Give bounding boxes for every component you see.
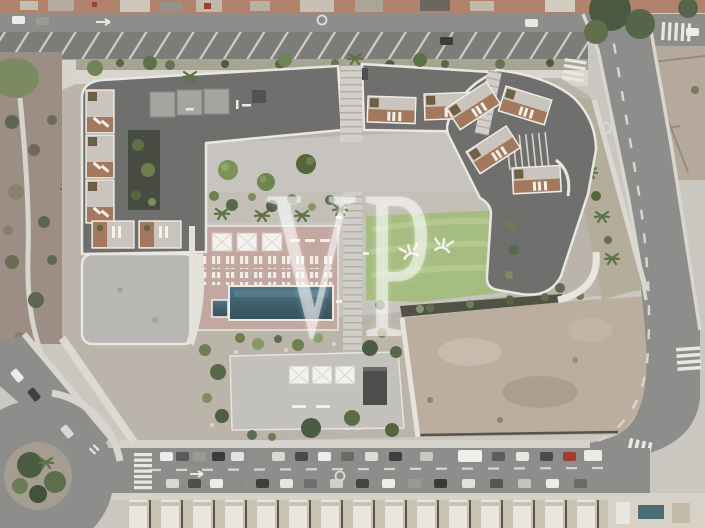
umbrella [335, 366, 355, 384]
pergola [262, 233, 282, 251]
lower-terrace [230, 352, 404, 430]
building-light-roof [82, 254, 194, 344]
north-road [0, 13, 600, 32]
terrace [139, 221, 181, 248]
pool-area [196, 226, 338, 330]
sun-lounger-row [202, 272, 334, 285]
south-road [86, 440, 705, 500]
south-buildings [128, 500, 705, 528]
atrium-garden [128, 130, 160, 210]
pavilion-roof [363, 367, 387, 405]
lawn [366, 210, 506, 302]
pergola [212, 233, 232, 251]
neighbor-pool [638, 505, 664, 519]
umbrella [312, 366, 332, 384]
car [686, 28, 699, 36]
terrace [86, 180, 114, 223]
north-entry-path [340, 66, 362, 142]
car [440, 37, 453, 45]
car [36, 17, 49, 25]
site-plan: VP [0, 0, 705, 528]
car [12, 16, 25, 24]
pergola [237, 233, 257, 251]
sun-lounger-row [202, 256, 334, 269]
umbrella [289, 366, 309, 384]
terrace [86, 135, 114, 178]
terrace [512, 165, 561, 193]
site-plan-graphic [0, 0, 705, 528]
north-parking-lot [0, 32, 588, 59]
kids-pool [212, 300, 228, 317]
terrace [86, 90, 114, 133]
steps [343, 196, 362, 361]
car [525, 19, 538, 27]
terrace [92, 221, 134, 248]
vacant-lot-southeast [402, 296, 650, 437]
terrace [367, 96, 416, 124]
